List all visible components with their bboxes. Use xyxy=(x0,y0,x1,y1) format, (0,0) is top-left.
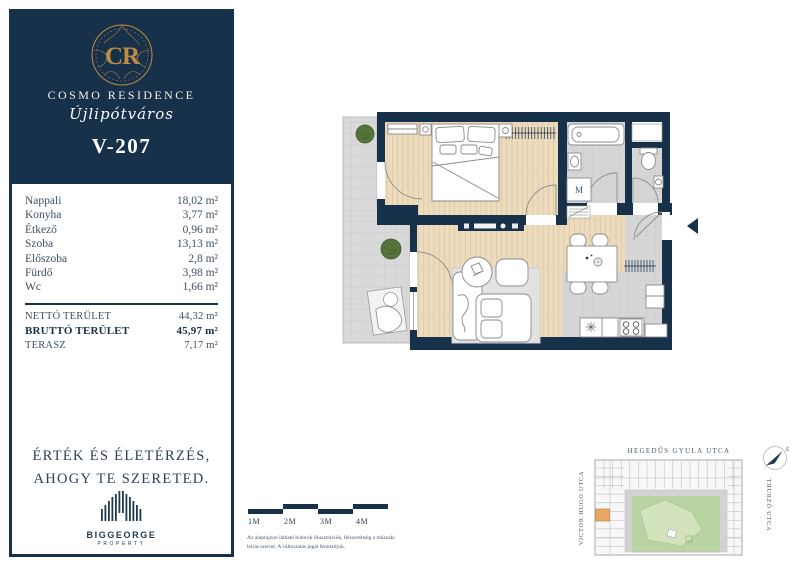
entrance-arrow-icon xyxy=(687,218,698,234)
shoe-cabinet xyxy=(567,206,590,218)
chair xyxy=(592,281,608,294)
highlighted-unit xyxy=(596,509,610,521)
brand-name: COSMO RESIDENCE xyxy=(12,88,231,103)
storage-niche xyxy=(632,124,662,141)
cabinet xyxy=(645,324,667,337)
pillow xyxy=(468,126,496,142)
nightstand-right xyxy=(499,124,512,137)
sofa xyxy=(476,294,531,342)
developer-name: BIGGEORGE xyxy=(12,530,231,540)
total-row-terasz: TERASZ7,17 m² xyxy=(25,340,218,354)
plant-icon xyxy=(356,125,374,143)
chair xyxy=(570,281,586,294)
room-row: Nappali18,02 m² xyxy=(25,195,218,209)
slogan: ÉRTÉK ÉS ÉLETÉRZÉS, AHOGY TE SZERETED. xyxy=(12,445,231,492)
floor-plan: M xyxy=(340,100,700,365)
dining-table xyxy=(567,246,617,282)
room-row: Étkező0,96 m² xyxy=(25,224,218,238)
street-left-label: VICTOR HUGO UTCA xyxy=(578,471,585,546)
fridge xyxy=(646,285,664,308)
scale-bar: 1M 2M 3M 4M xyxy=(248,500,398,530)
totals-list: NETTÓ TERÜLET44,32 m² BRUTTÓ TERÜLET45,9… xyxy=(12,311,231,354)
cosmo-residence-logo-icon: CR xyxy=(90,23,154,87)
room-row: Előszoba2,8 m² xyxy=(25,253,218,267)
stove xyxy=(620,319,642,336)
site-map: HEGEDŰS GYULA UTCA VICTOR HUGO UTCA THUR… xyxy=(570,438,798,565)
nightstand-left xyxy=(420,124,431,135)
compass-label: É xyxy=(786,445,790,453)
developer-logo: BIGGEORGE PROPERTY xyxy=(12,489,231,547)
chair xyxy=(592,234,608,247)
washer-label: M xyxy=(575,185,583,195)
room-row: Konyha3,77 m² xyxy=(25,209,218,223)
developer-sub: PROPERTY xyxy=(12,541,231,547)
room-row: Fürdő3,98 m² xyxy=(25,267,218,281)
street-top-label: HEGEDŰS GYULA UTCA xyxy=(628,447,731,455)
building-footprint xyxy=(595,460,742,555)
scale-label: 4M xyxy=(356,517,368,526)
room-row: Wc1,66 m² xyxy=(25,281,218,295)
room-row: Szoba13,13 m² xyxy=(25,238,218,252)
armchair xyxy=(496,259,528,286)
logo-monogram: CR xyxy=(104,43,140,70)
scale-label: 2M xyxy=(284,517,296,526)
coffee-table xyxy=(462,257,492,287)
scale-label: 1M xyxy=(248,517,260,526)
disclaimer-text: Az alaprajzon látható bútorok illusztrác… xyxy=(247,534,405,552)
pillow xyxy=(436,126,465,142)
street-right-label: THURZÓ UTCA xyxy=(765,478,773,531)
info-panel: CR COSMO RESIDENCE Újlipótváros V-207 Na… xyxy=(9,9,234,557)
chair xyxy=(570,234,586,247)
unit-id: V-207 xyxy=(12,134,231,159)
brand-header: CR COSMO RESIDENCE Újlipótváros V-207 xyxy=(12,12,231,184)
brand-district: Újlipótváros xyxy=(12,105,231,123)
list-divider xyxy=(25,303,218,305)
total-row-netto: NETTÓ TERÜLET44,32 m² xyxy=(25,311,218,325)
compass-icon: É xyxy=(764,445,791,470)
biggeorge-bars-icon xyxy=(99,489,145,523)
total-row-brutto: BRUTTÓ TERÜLET45,97 m² xyxy=(25,325,218,339)
toilet xyxy=(642,153,656,170)
room-area-list: Nappali18,02 m² Konyha3,77 m² Étkező0,96… xyxy=(12,184,231,296)
sink xyxy=(586,322,596,332)
scale-label: 3M xyxy=(320,517,332,526)
plant-icon xyxy=(381,239,401,259)
tv xyxy=(474,224,496,229)
